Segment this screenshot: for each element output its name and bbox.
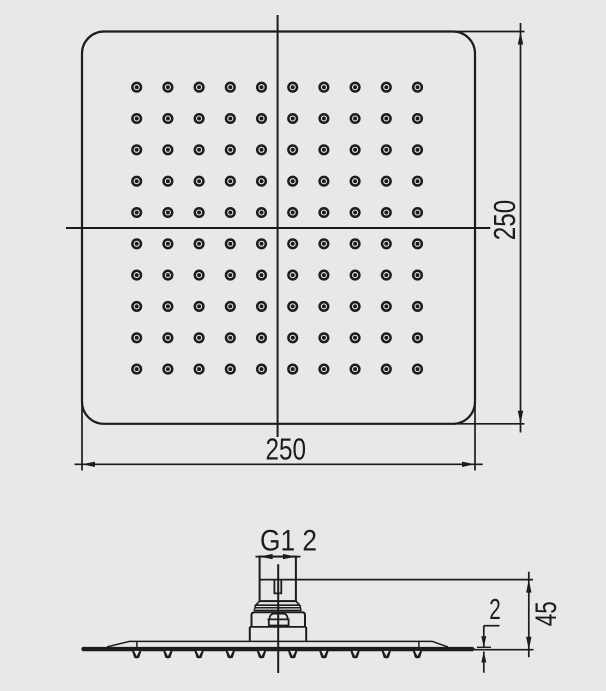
svg-text:2: 2 (489, 594, 501, 626)
svg-text:45: 45 (530, 601, 563, 626)
svg-text:250: 250 (266, 432, 307, 467)
svg-text:250: 250 (487, 200, 522, 241)
svg-text:G1 2: G1 2 (260, 525, 317, 558)
